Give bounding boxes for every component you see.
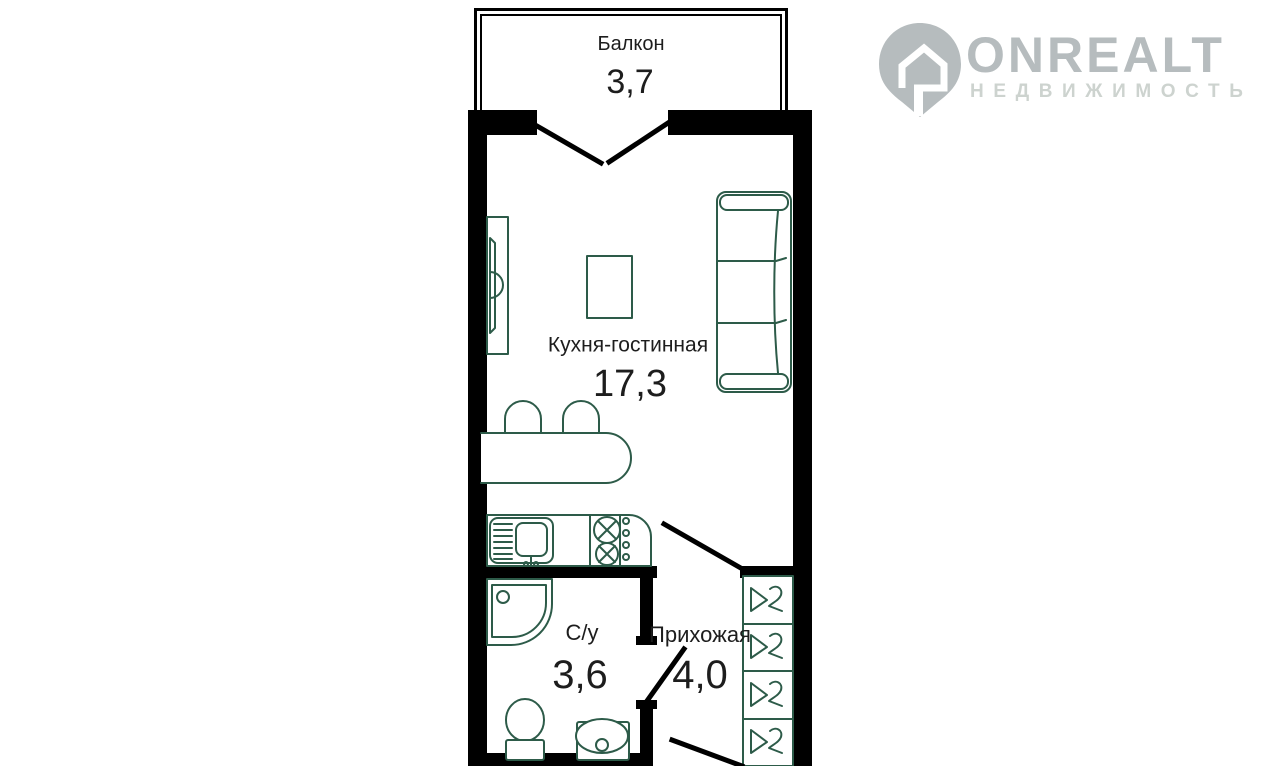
room-label-balcony: Балкон bbox=[597, 34, 664, 54]
washbasin-icon bbox=[576, 719, 629, 760]
room-label-hallway: Прихожая bbox=[649, 624, 751, 646]
bar-stool-icon bbox=[505, 401, 541, 432]
wall-top-left bbox=[468, 110, 537, 135]
room-area-bathroom: 3,6 bbox=[552, 655, 608, 695]
tv-stand-icon bbox=[487, 217, 508, 354]
wall-mid-left bbox=[468, 566, 657, 578]
entrance-door-leaf bbox=[672, 740, 742, 766]
room-label-bathroom: С/у bbox=[566, 622, 599, 644]
balcony-door-leaf-left bbox=[537, 126, 601, 163]
coffee-table-icon bbox=[587, 256, 632, 318]
wall-right bbox=[793, 110, 812, 766]
wardrobe-icon bbox=[743, 576, 793, 766]
bar-counter-icon bbox=[481, 401, 631, 483]
shower-icon bbox=[487, 579, 552, 645]
hallway-door-leaf bbox=[664, 524, 739, 567]
floor-plan-page: ONREALT НЕДВИЖИМОСТЬ bbox=[0, 0, 1280, 766]
balcony-door-leaf-right bbox=[609, 123, 668, 162]
room-area-kitchen-living: 17,3 bbox=[593, 365, 667, 403]
toilet-icon bbox=[506, 699, 544, 760]
room-label-kitchen-living: Кухня-гостинная bbox=[548, 335, 708, 356]
sofa-icon bbox=[717, 192, 791, 392]
bar-stool-icon bbox=[563, 401, 599, 432]
kitchen-counter bbox=[487, 515, 651, 566]
wall-top-right bbox=[668, 110, 812, 135]
room-area-hallway: 4,0 bbox=[672, 655, 728, 695]
room-area-balcony: 3,7 bbox=[606, 65, 653, 99]
